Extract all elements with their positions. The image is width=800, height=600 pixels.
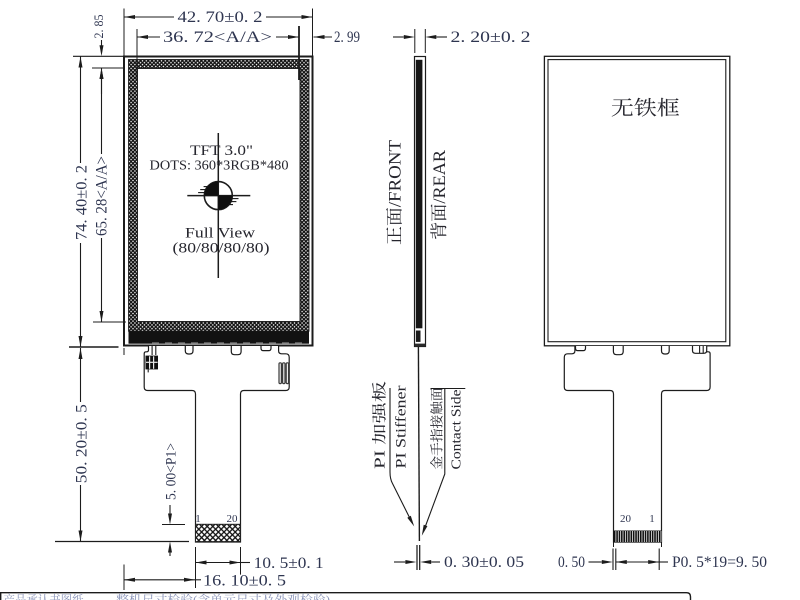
svg-text:P0. 5*19=9. 50: P0. 5*19=9. 50 <box>672 554 767 571</box>
svg-text:36. 72<A/A>: 36. 72<A/A> <box>163 29 272 46</box>
svg-text:Contact Side: Contact Side <box>450 390 465 470</box>
svg-text:16. 10±0. 5: 16. 10±0. 5 <box>203 572 286 589</box>
svg-text:65. 28<A/A>: 65. 28<A/A> <box>94 156 111 236</box>
svg-text:74. 40±0. 2: 74. 40±0. 2 <box>74 165 91 240</box>
svg-text:2. 99: 2. 99 <box>334 29 360 46</box>
svg-text:Full View: Full View <box>185 225 256 241</box>
svg-text:1: 1 <box>195 513 201 525</box>
svg-text:0. 50: 0. 50 <box>558 554 585 571</box>
svg-text:(80/80/80/80): (80/80/80/80) <box>173 240 270 256</box>
svg-text:DOTS: 360*3RGB*480: DOTS: 360*3RGB*480 <box>150 157 289 172</box>
svg-text:50. 20±0. 5: 50. 20±0. 5 <box>74 404 91 483</box>
svg-text:2. 85: 2. 85 <box>92 15 106 39</box>
svg-text:5. 00<P1>: 5. 00<P1> <box>164 443 180 500</box>
svg-text:20: 20 <box>227 513 239 525</box>
svg-text:2. 20±0. 2: 2. 20±0. 2 <box>451 29 531 46</box>
svg-text:1: 1 <box>649 513 655 525</box>
svg-text:42. 70±0. 2: 42. 70±0. 2 <box>178 9 263 26</box>
svg-text:10. 5±0. 1: 10. 5±0. 1 <box>254 555 324 572</box>
svg-text:20: 20 <box>620 513 632 525</box>
svg-text:PI Stiffener: PI Stiffener <box>394 385 410 468</box>
svg-text:0. 30±0. 05: 0. 30±0. 05 <box>444 554 524 571</box>
